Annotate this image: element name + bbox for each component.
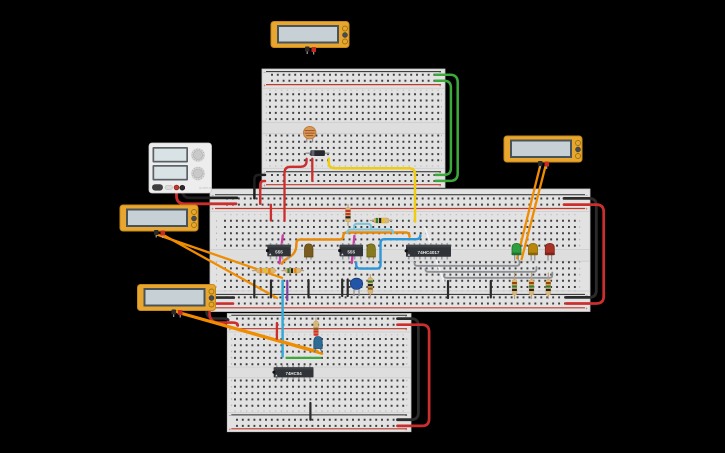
svg-text:+: + xyxy=(211,207,214,212)
svg-text:+: + xyxy=(229,427,232,432)
svg-text:−: − xyxy=(229,313,232,318)
svg-text:−: − xyxy=(263,70,266,75)
svg-text:+: + xyxy=(405,327,408,332)
svg-text:+: + xyxy=(439,183,442,188)
svg-text:555: 555 xyxy=(275,250,283,255)
svg-text:74HC04: 74HC04 xyxy=(286,371,303,376)
svg-text:−: − xyxy=(229,413,232,418)
svg-text:+: + xyxy=(263,83,266,88)
svg-text:+: + xyxy=(405,427,408,432)
svg-text:555: 555 xyxy=(347,250,355,255)
svg-text:−: − xyxy=(405,413,408,418)
svg-text:+: + xyxy=(439,83,442,88)
svg-text:OUTPUT: OUTPUT xyxy=(199,186,212,190)
svg-text:−: − xyxy=(585,193,588,198)
svg-text:+: + xyxy=(263,183,266,188)
svg-text:+: + xyxy=(585,207,588,212)
svg-text:+: + xyxy=(585,306,588,311)
svg-text:74HC4017: 74HC4017 xyxy=(418,250,440,255)
